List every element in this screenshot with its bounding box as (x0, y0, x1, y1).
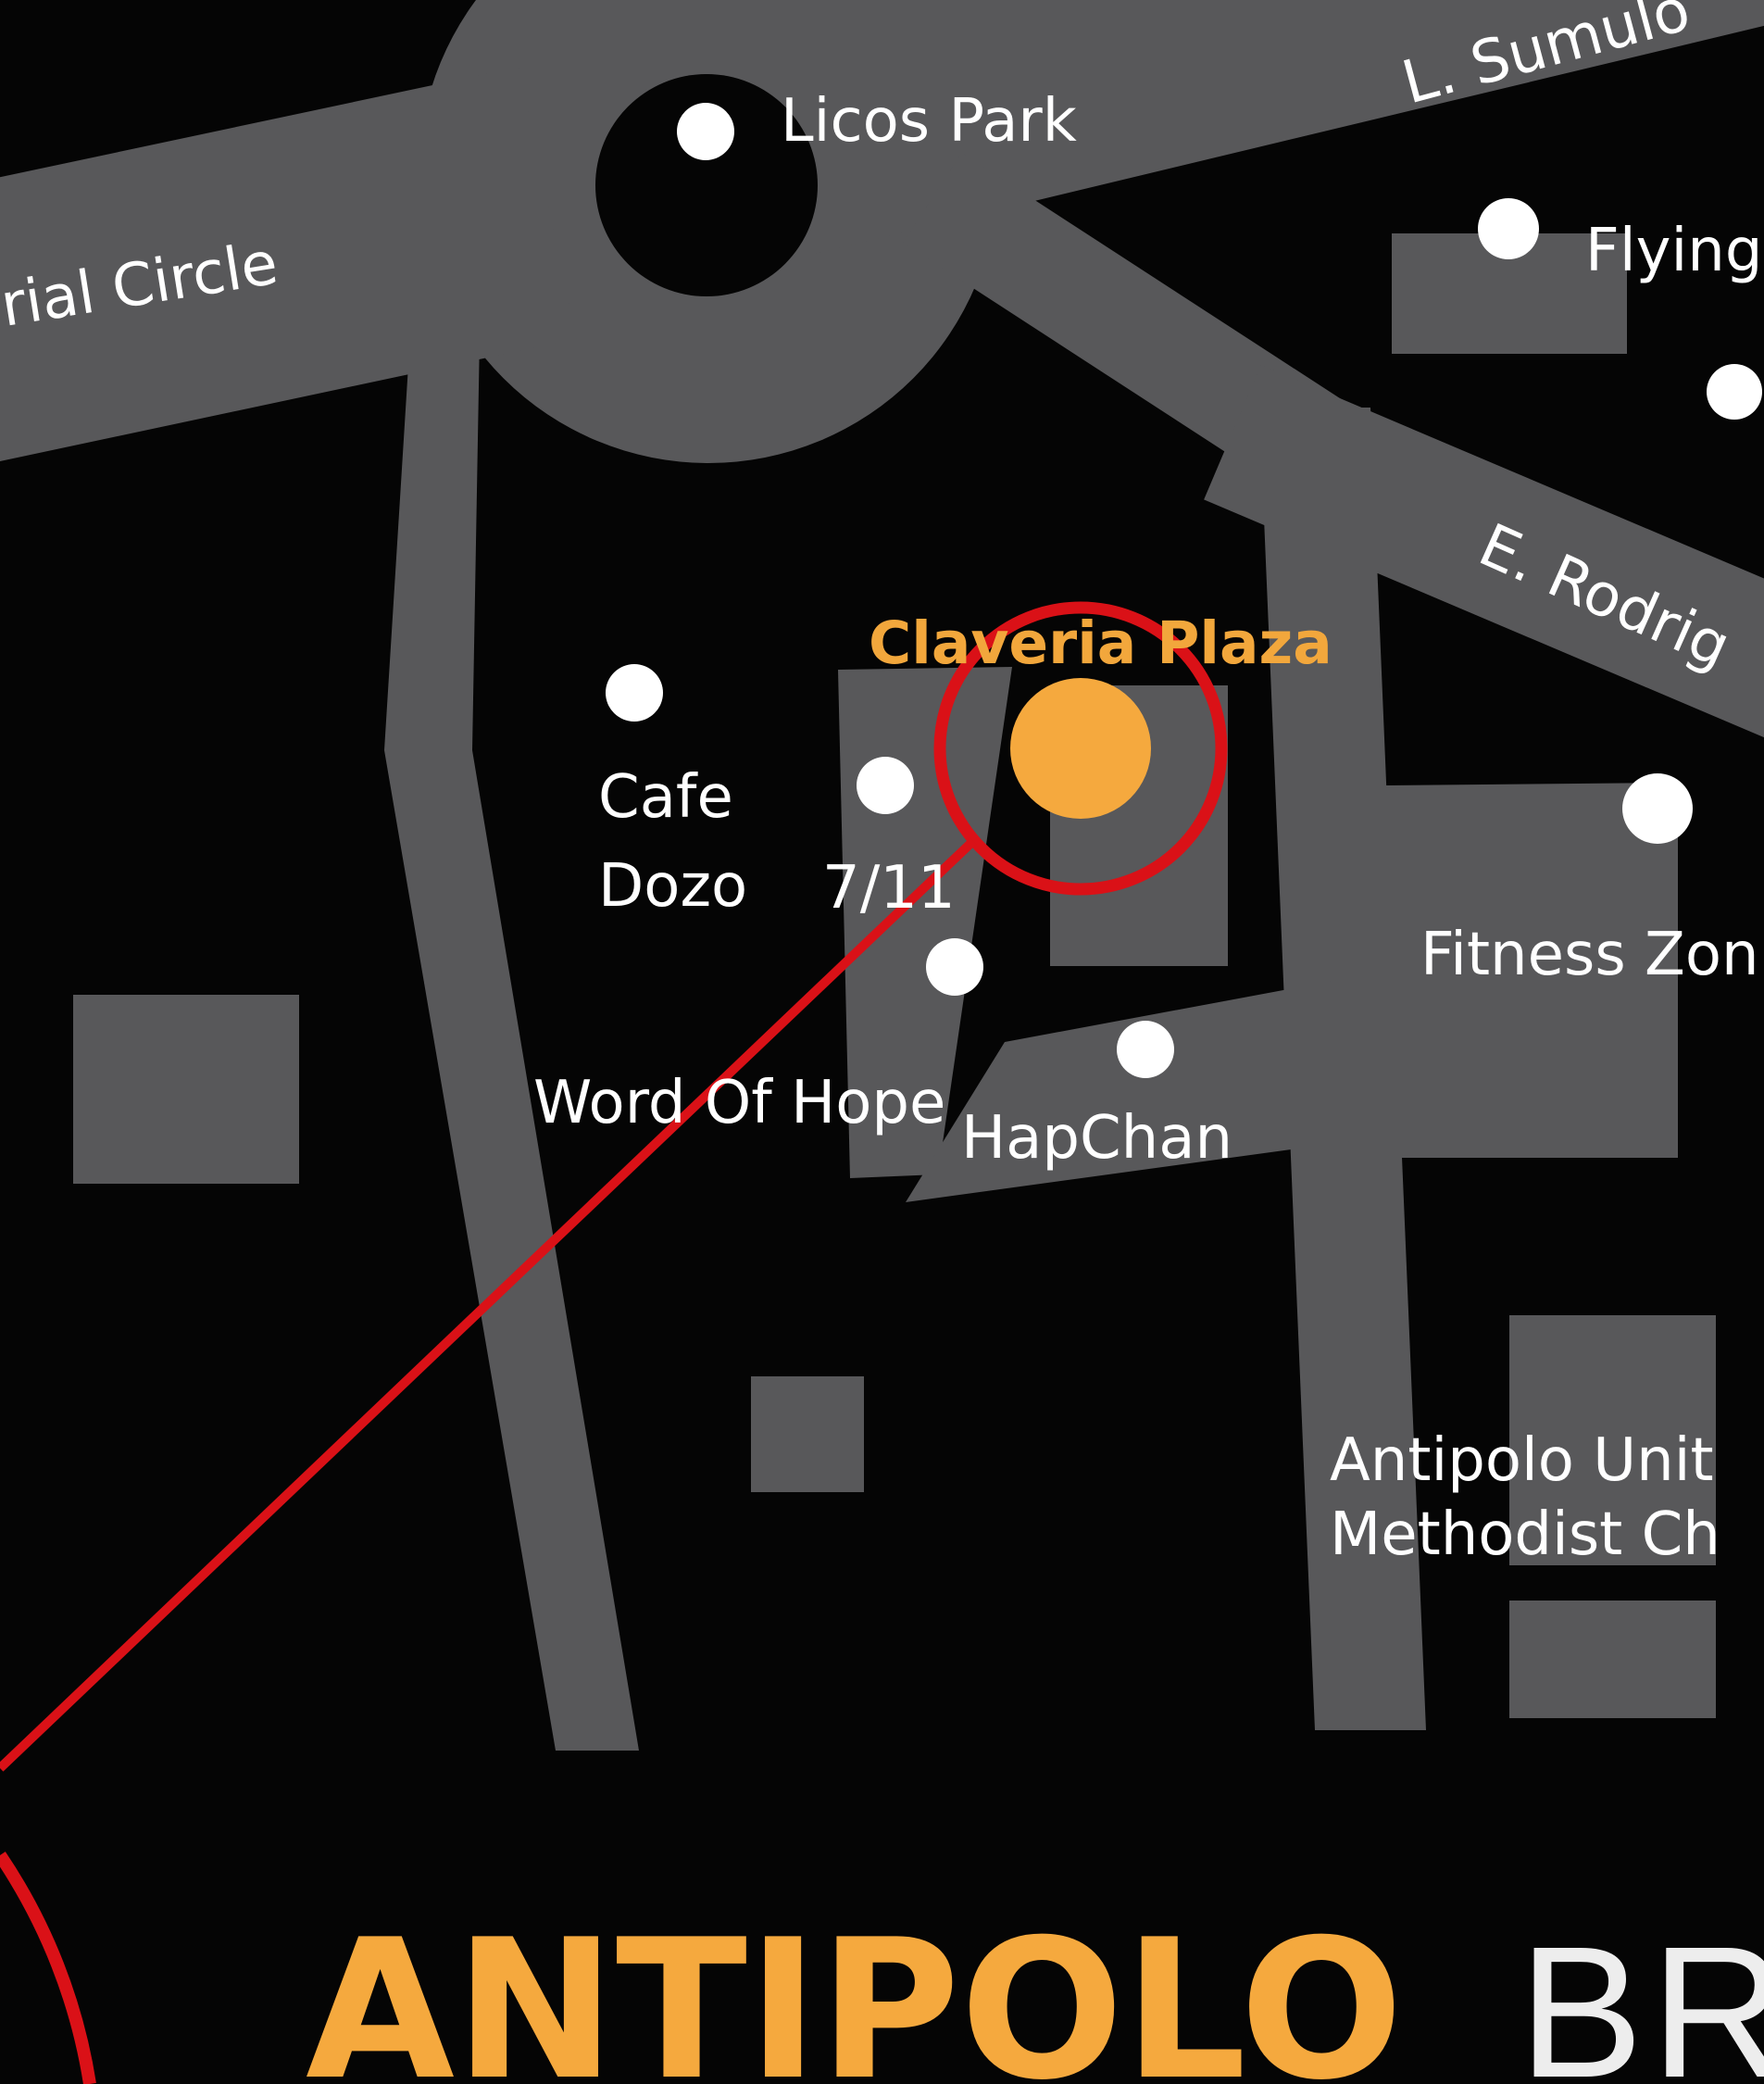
label-fitness-zone: Fitness Zon (1420, 921, 1759, 989)
branch-location-map: rial Circle Licos Park L. Sumulo Flying … (0, 0, 1764, 2084)
label-cafe-dozo-line1: Cafe (598, 763, 733, 832)
fitness-zone-dot (1622, 773, 1693, 844)
label-flying: Flying (1585, 217, 1762, 285)
label-cafe-dozo-line2: Dozo (598, 852, 747, 921)
map-canvas: rial Circle Licos Park L. Sumulo Flying … (0, 0, 1764, 2084)
label-word-of-hope: Word Of Hope (533, 1069, 945, 1137)
flying-dot (1478, 198, 1539, 259)
branch-title-primary: ANTIPOLO (306, 1899, 1404, 2084)
branch-title-secondary: BR (1519, 1907, 1764, 2084)
building-church-lower (1509, 1601, 1716, 1718)
east-edge-dot (1707, 364, 1762, 420)
label-hapchan: HapChan (961, 1104, 1232, 1173)
title-layer: ANTIPOLO BR (306, 1899, 1764, 2084)
claveria-plaza-dot (1010, 678, 1151, 819)
hapchan-dot (1117, 1021, 1174, 1078)
label-seven-eleven: 7/11 (822, 854, 956, 923)
building-west-block (73, 995, 299, 1184)
licos-park-dot (677, 103, 734, 160)
label-church-line1: Antipolo Unit (1330, 1426, 1714, 1495)
seven-eleven-dot (857, 757, 914, 814)
label-church-line2: Methodist Ch (1330, 1500, 1720, 1569)
label-claveria-plaza: Claveria Plaza (869, 609, 1332, 677)
label-licos-park: Licos Park (781, 87, 1077, 156)
building-south-block (751, 1376, 864, 1492)
word-of-hope-dot (926, 938, 983, 996)
cafe-dozo-dot (606, 664, 663, 722)
